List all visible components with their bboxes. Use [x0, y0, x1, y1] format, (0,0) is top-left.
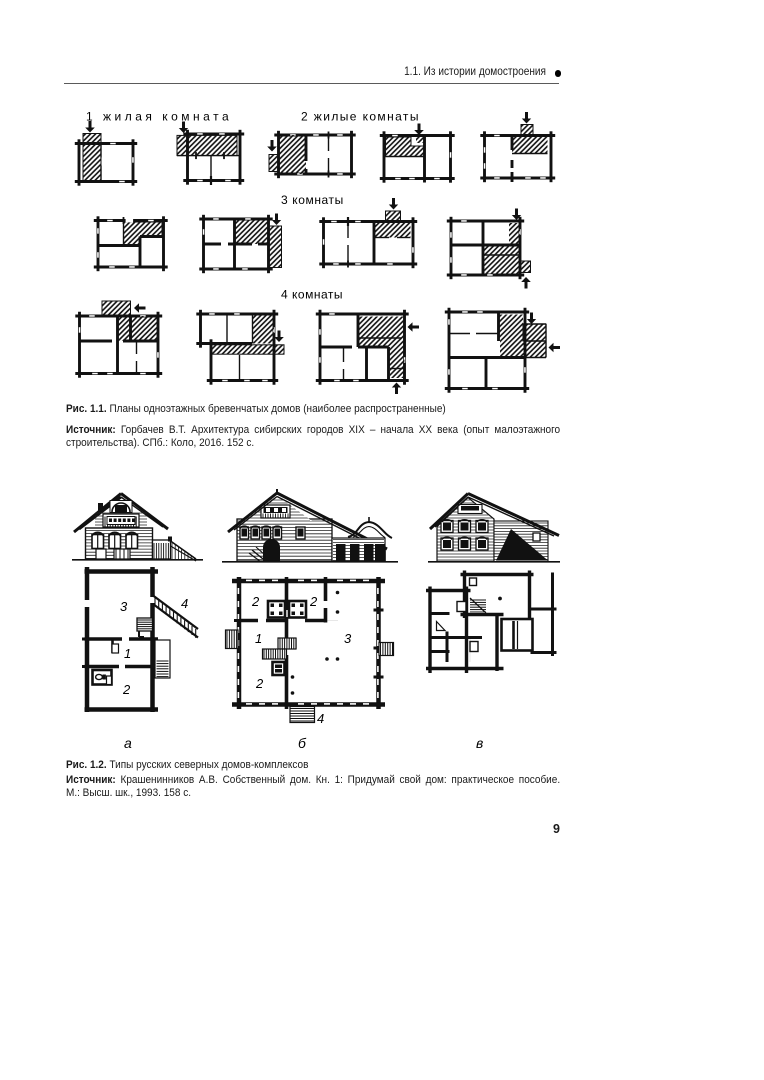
svg-text:2: 2 [309, 594, 318, 609]
svg-text:3 комнаты: 3 комнаты [281, 193, 344, 207]
svg-text:4: 4 [181, 596, 188, 611]
svg-text:2: 2 [251, 594, 260, 609]
svg-text:1 жилая комната: 1 жилая комната [86, 110, 232, 124]
svg-text:3: 3 [120, 599, 128, 614]
svg-text:1: 1 [124, 646, 131, 661]
svg-text:1: 1 [255, 631, 262, 646]
svg-text:а: а [124, 735, 132, 751]
svg-text:4 комнаты: 4 комнаты [281, 288, 343, 302]
svg-text:2: 2 [122, 682, 131, 697]
svg-text:б: б [298, 735, 307, 751]
svg-text:в: в [476, 735, 483, 751]
svg-text:3: 3 [344, 631, 352, 646]
svg-text:2: 2 [255, 676, 264, 691]
svg-text:2 жилые комнаты: 2 жилые комнаты [301, 110, 420, 124]
svg-text:4: 4 [317, 711, 324, 726]
